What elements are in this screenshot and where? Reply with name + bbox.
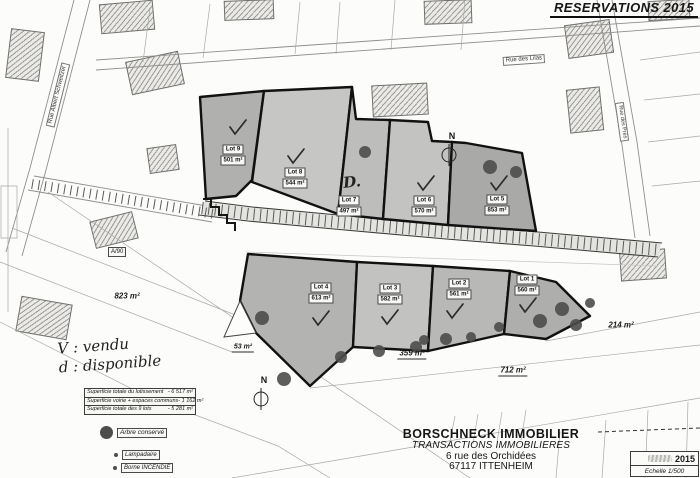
lot-name: Lot 4 — [311, 283, 331, 293]
legend-hydrant: Borne INCENDIE — [113, 463, 173, 473]
area-label-triangle: 53 m² — [232, 344, 254, 353]
lot-area: 497 m² — [336, 207, 361, 217]
compass-north-label: N — [449, 131, 456, 141]
summary-row: Superficie totale des 9 lots - 5 281 m² — [84, 405, 196, 415]
summary-label: Superficie totale du lotissement — [87, 389, 163, 397]
handwriting-smudge — [648, 455, 672, 462]
lot-name: Lot 8 — [285, 168, 305, 178]
scale-value: Echelle 1/500 — [631, 466, 698, 477]
lampadaire-icon — [114, 453, 118, 457]
lot-label-7: Lot 7 497 m² — [336, 196, 361, 217]
lot-area: 570 m² — [411, 207, 436, 217]
lot-name: Lot 7 — [339, 196, 359, 206]
legend-lamp-label: Lampadaire — [122, 450, 160, 460]
lot-label-3: Lot 3 582 m² — [377, 284, 402, 305]
firm-address-line2: 67117 ITTENHEIM — [350, 462, 632, 473]
lot-area: 613 m² — [308, 294, 333, 304]
summary-value: - 5 281 m² — [168, 406, 193, 414]
compass-north-label: N — [261, 375, 268, 385]
lot-name: Lot 9 — [223, 145, 243, 155]
area-label-south: 712 m² — [498, 366, 527, 377]
legend-tree: Arbre conservé — [100, 426, 167, 439]
lot-name: Lot 1 — [517, 275, 537, 285]
site-plan-canvas: RESERVATIONS 2015 Rue Albert Schweitzer … — [0, 0, 700, 478]
legend-tree-label: Arbre conservé — [117, 428, 167, 438]
summary-value: - 6 517 m² — [168, 389, 193, 397]
lot-name: Lot 5 — [487, 195, 507, 205]
scale-year: 2015 — [675, 454, 695, 464]
lot-area: 560 m² — [514, 286, 539, 296]
lot-name: Lot 6 — [414, 196, 434, 206]
summary-label: Superficie voirie + espaces communs — [87, 398, 178, 406]
legend-lamp: Lampadaire — [114, 450, 160, 460]
summary-row: Superficie totale du lotissement - 6 517… — [84, 388, 196, 398]
lot-area: 561 m² — [446, 290, 471, 300]
lot-label-9: Lot 9 501 m² — [220, 145, 245, 166]
summary-row: Superficie voirie + espaces communs - 1 … — [84, 397, 196, 407]
summary-label: Superficie totale des 9 lots — [87, 406, 152, 414]
lot-label-8: Lot 8 544 m² — [282, 168, 307, 189]
summary-value: - 1 162 m² — [178, 398, 203, 406]
scale-box-year-row: 2015 — [631, 452, 698, 466]
lot-5-parcel — [448, 142, 536, 231]
tree-icon — [100, 426, 113, 439]
lot-area: 501 m² — [220, 156, 245, 166]
scale-box: 2015 Echelle 1/500 — [630, 451, 699, 477]
lot-label-2: Lot 2 561 m² — [446, 279, 471, 300]
lot-area: 544 m² — [282, 179, 307, 189]
lot-label-5: Lot 5 853 m² — [484, 195, 509, 216]
lot-area: 853 m² — [484, 206, 509, 216]
lot-name: Lot 3 — [380, 284, 400, 294]
hydrant-icon — [113, 466, 117, 470]
lot-label-6: Lot 6 570 m² — [411, 196, 436, 217]
area-label-east: 214 m² — [608, 321, 633, 330]
handwritten-legend: V : vendu d : disponible — [57, 332, 162, 377]
lot-area: 582 m² — [377, 295, 402, 305]
lot7-disponible-mark: D. — [342, 172, 361, 192]
road-reference-label: A/90 — [108, 247, 126, 257]
area-label-left: 823 m² — [114, 292, 139, 301]
surface-summary-table: Superficie totale du lotissement - 6 517… — [84, 389, 196, 415]
legend-hydrant-label: Borne INCENDIE — [121, 463, 173, 473]
plan-title: RESERVATIONS 2015 — [550, 0, 698, 18]
area-label-south-mid: 359 m² — [397, 349, 426, 360]
lot-name: Lot 2 — [449, 279, 469, 289]
lot-label-1: Lot 1 560 m² — [514, 275, 539, 296]
firm-block: BORSCHNECK IMMOBILIER TRANSACTIONS IMMOB… — [350, 428, 632, 473]
lot-label-4: Lot 4 613 m² — [308, 283, 333, 304]
